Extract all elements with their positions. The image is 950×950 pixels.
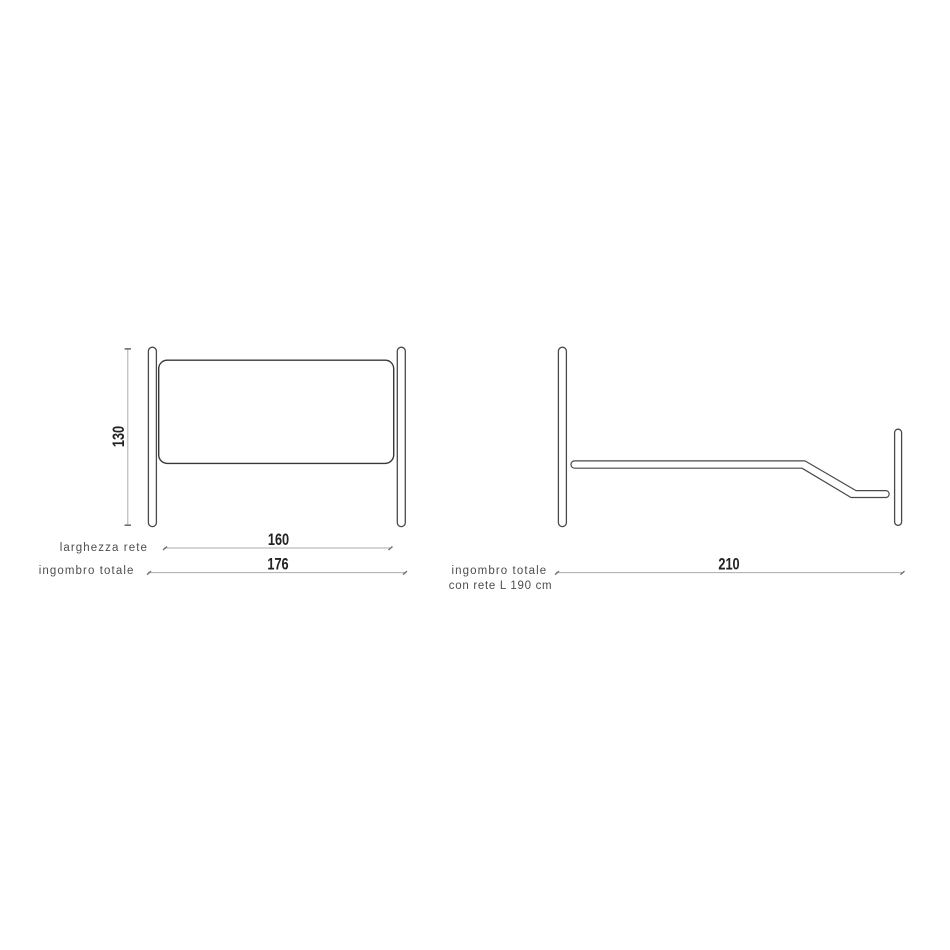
svg-text:con rete L 190 cm: con rete L 190 cm: [449, 580, 553, 592]
svg-text:130: 130: [109, 426, 128, 447]
svg-text:ingombro totale: ingombro totale: [452, 565, 548, 577]
svg-text:ingombro totale: ingombro totale: [39, 565, 135, 577]
svg-text:larghezza rete: larghezza rete: [60, 542, 148, 554]
svg-text:160: 160: [268, 530, 289, 549]
svg-text:176: 176: [267, 555, 288, 574]
svg-text:210: 210: [718, 555, 739, 574]
